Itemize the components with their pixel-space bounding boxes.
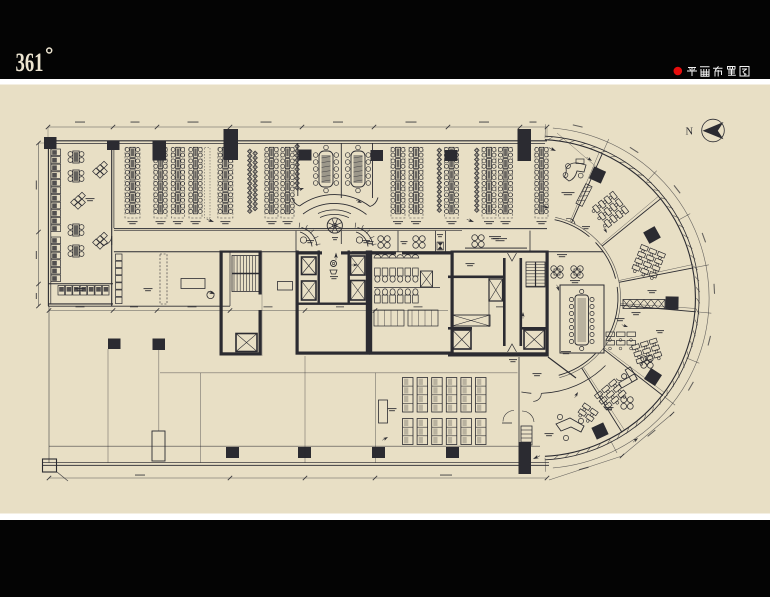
svg-text:N: N (686, 127, 694, 138)
svg-text:361: 361 (16, 48, 44, 77)
